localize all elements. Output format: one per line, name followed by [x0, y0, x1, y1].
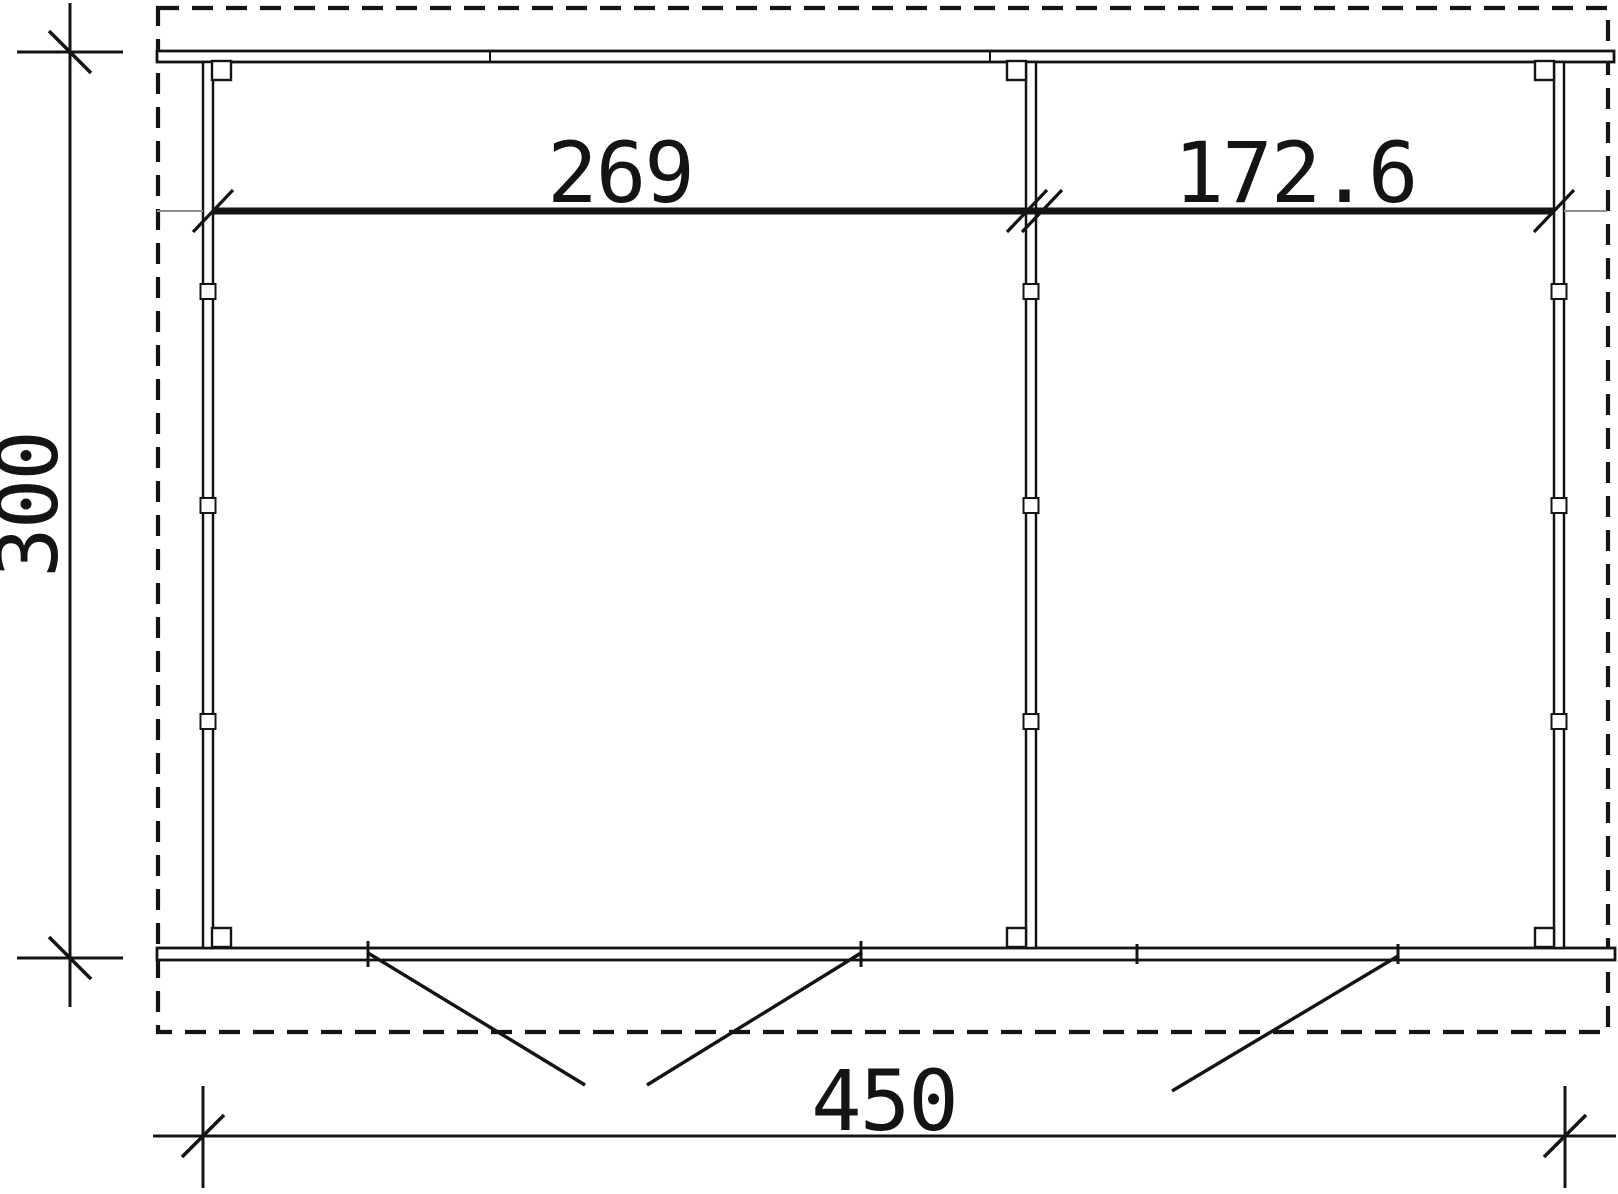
- top-wall: [157, 51, 1614, 62]
- joint-mark: [201, 714, 216, 729]
- joint-mark: [201, 284, 216, 299]
- floor-plan-drawing: 269 172.6 300 450: [0, 0, 1618, 1194]
- floor-plan-page: 269 172.6 300 450: [0, 0, 1618, 1194]
- joint-mark: [1024, 498, 1039, 513]
- joint-mark: [1024, 284, 1039, 299]
- notch-top-left: [212, 61, 231, 80]
- interior-width-dimension: 269 172.6: [157, 124, 1607, 232]
- single-door-leaf: [1172, 956, 1398, 1091]
- joint-mark: [1552, 284, 1567, 299]
- double-door-left-leaf: [368, 953, 585, 1085]
- joint-mark: [1024, 714, 1039, 729]
- left-room-width-label: 269: [547, 124, 693, 222]
- notch-bottom-middle: [1007, 928, 1026, 947]
- notch-top-right: [1535, 61, 1554, 80]
- depth-dimension-label: 300: [0, 432, 77, 578]
- notch-top-middle: [1007, 61, 1026, 80]
- width-dimension-label: 450: [811, 1052, 957, 1150]
- joint-mark: [201, 498, 216, 513]
- outer-width-dimension: 450: [153, 1052, 1616, 1188]
- outer-depth-dimension: 300: [0, 3, 123, 1007]
- notch-bottom-right: [1535, 928, 1554, 947]
- joint-mark: [1552, 714, 1567, 729]
- right-room-width-label: 172.6: [1174, 124, 1417, 222]
- notch-bottom-left: [212, 928, 231, 947]
- joint-mark: [1552, 498, 1567, 513]
